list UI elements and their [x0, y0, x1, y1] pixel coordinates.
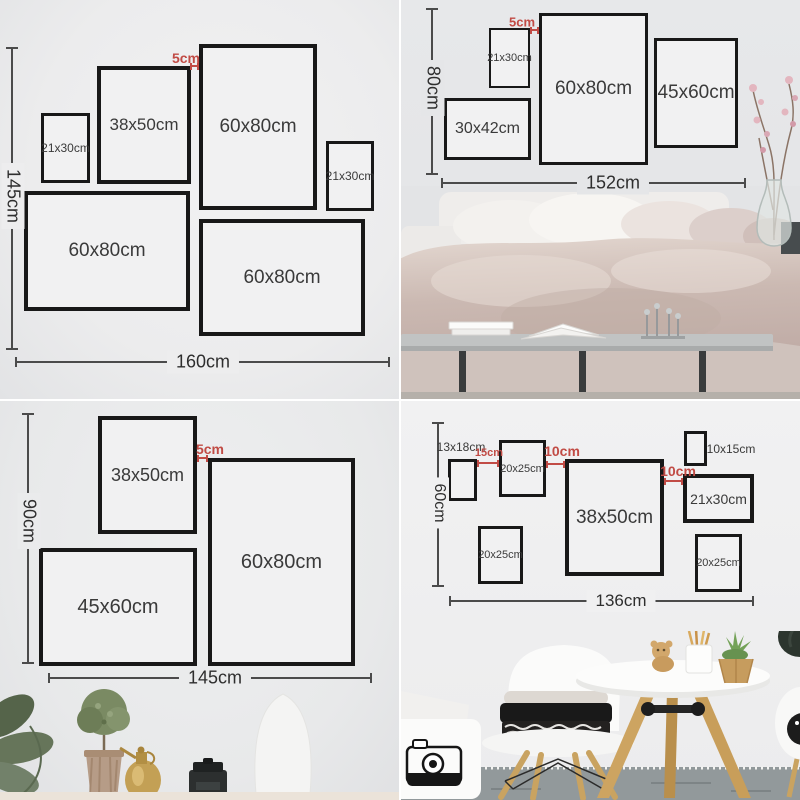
succulent: [719, 631, 753, 683]
height-dimension-label: 90cm: [18, 493, 41, 549]
height-dimension-label: 145cm: [2, 163, 25, 229]
frame-size-label: 10x15cm: [707, 442, 756, 456]
panel-top-right: 80cm 21x30cm 60x80cm 45x60cm 30x42cm 5cm…: [401, 0, 800, 399]
glass-vase: [757, 180, 791, 246]
width-dimension-label: 145cm: [179, 667, 251, 690]
panel-bottom-left: 90cm 38x50cm 60x80cm 45x60cm 5cm 145cm: [0, 401, 399, 800]
frame-size-label: 60x80cm: [219, 116, 296, 138]
pillows: [401, 691, 481, 799]
frame-38x50: 38x50cm: [565, 459, 664, 576]
gap-label-5cm: 5cm: [196, 441, 224, 457]
frame-size-label: 45x60cm: [77, 596, 158, 619]
frame-38x50: 38x50cm: [98, 416, 197, 534]
gap-marker: [477, 460, 499, 467]
frame-20x25: 20x25cm: [499, 440, 546, 497]
dining-photo: [401, 631, 800, 800]
frame-13x18: [448, 459, 477, 501]
frame-size-label: 21x30cm: [41, 141, 90, 155]
frame-size-label: 38x50cm: [111, 465, 184, 486]
frame-size-label: 38x50cm: [576, 507, 653, 529]
brass-sprayer: [120, 747, 161, 800]
gap-marker: [664, 478, 683, 485]
carpet-edge: [401, 392, 800, 399]
frame-60x80: 60x80cm: [539, 13, 648, 165]
gap-label-15cm: 15cm: [475, 447, 503, 459]
blossoms: [749, 76, 798, 153]
frame-21x30: 21x30cm: [326, 141, 374, 211]
frame-size-label: 60x80cm: [68, 240, 145, 262]
frame-size-label: 20x25cm: [696, 557, 741, 569]
frame-size-label: 21x30cm: [690, 491, 747, 507]
gap-marker: [546, 461, 565, 468]
frame-21x30: 21x30cm: [489, 28, 530, 88]
monstera-leaves: [0, 686, 56, 800]
frame-60x80: 60x80cm: [208, 458, 355, 666]
frame-45x60: 45x60cm: [39, 548, 197, 666]
frame-38x50: 38x50cm: [97, 66, 191, 184]
panel-top-left: 145cm 21x30cm 38x50cm 60x80cm 21x30cm 60…: [0, 0, 399, 399]
frame-size-label: 60x80cm: [243, 267, 320, 289]
shelf-photo: [0, 686, 399, 800]
frame-21x30: 21x30cm: [41, 113, 90, 183]
frame-size-label: 60x80cm: [555, 78, 632, 100]
frame-45x60: 45x60cm: [654, 38, 738, 148]
frame-size-label: 21x30cm: [487, 52, 532, 64]
pencil-cup: [686, 631, 712, 673]
gap-label-5cm: 5cm: [509, 15, 535, 30]
vase-with-branches: [749, 50, 800, 248]
frame-10x15: [684, 431, 707, 466]
frame-size-label: 30x42cm: [455, 120, 520, 138]
frame-20x25: 20x25cm: [695, 534, 742, 592]
potted-topiary: [77, 689, 130, 799]
frame-size-label: 20x25cm: [500, 463, 545, 475]
frame-60x80: 60x80cm: [199, 44, 317, 210]
bedroom-photo: [401, 186, 800, 399]
gap-label-5cm: 5cm: [172, 50, 200, 66]
width-dimension-label: 136cm: [586, 590, 655, 612]
width-dimension-label: 160cm: [167, 351, 239, 374]
height-dimension-label: 60cm: [429, 477, 449, 528]
frame-21x30: 21x30cm: [683, 474, 754, 523]
wooden-toy: [651, 641, 675, 673]
table-lamp: [255, 694, 311, 794]
shelf-surface: [0, 792, 399, 800]
frame-size-label: 20x25cm: [478, 549, 523, 561]
frame-size-label: 60x80cm: [241, 551, 322, 574]
frame-size-label: 21x30cm: [326, 169, 375, 183]
frame-30x42: 30x42cm: [444, 98, 531, 160]
size-guide-collage: 145cm 21x30cm 38x50cm 60x80cm 21x30cm 60…: [0, 0, 800, 800]
gap-label-10cm: 10cm: [544, 443, 580, 459]
frame-20x25: 20x25cm: [478, 526, 523, 584]
panel-bottom-right: 60cm 13x18cm 20x25cm 38x50cm 10x15cm 21x…: [401, 401, 800, 800]
height-dimension-label: 80cm: [422, 60, 445, 116]
frame-60x80: 60x80cm: [199, 219, 365, 336]
right-plant-partial: [778, 631, 800, 657]
width-dimension-label: 152cm: [577, 172, 649, 195]
frame-size-label: 38x50cm: [110, 115, 179, 135]
frame-60x80: 60x80cm: [24, 191, 190, 311]
frame-size-label: 45x60cm: [657, 82, 734, 104]
gap-label-10cm: 10cm: [660, 463, 696, 479]
